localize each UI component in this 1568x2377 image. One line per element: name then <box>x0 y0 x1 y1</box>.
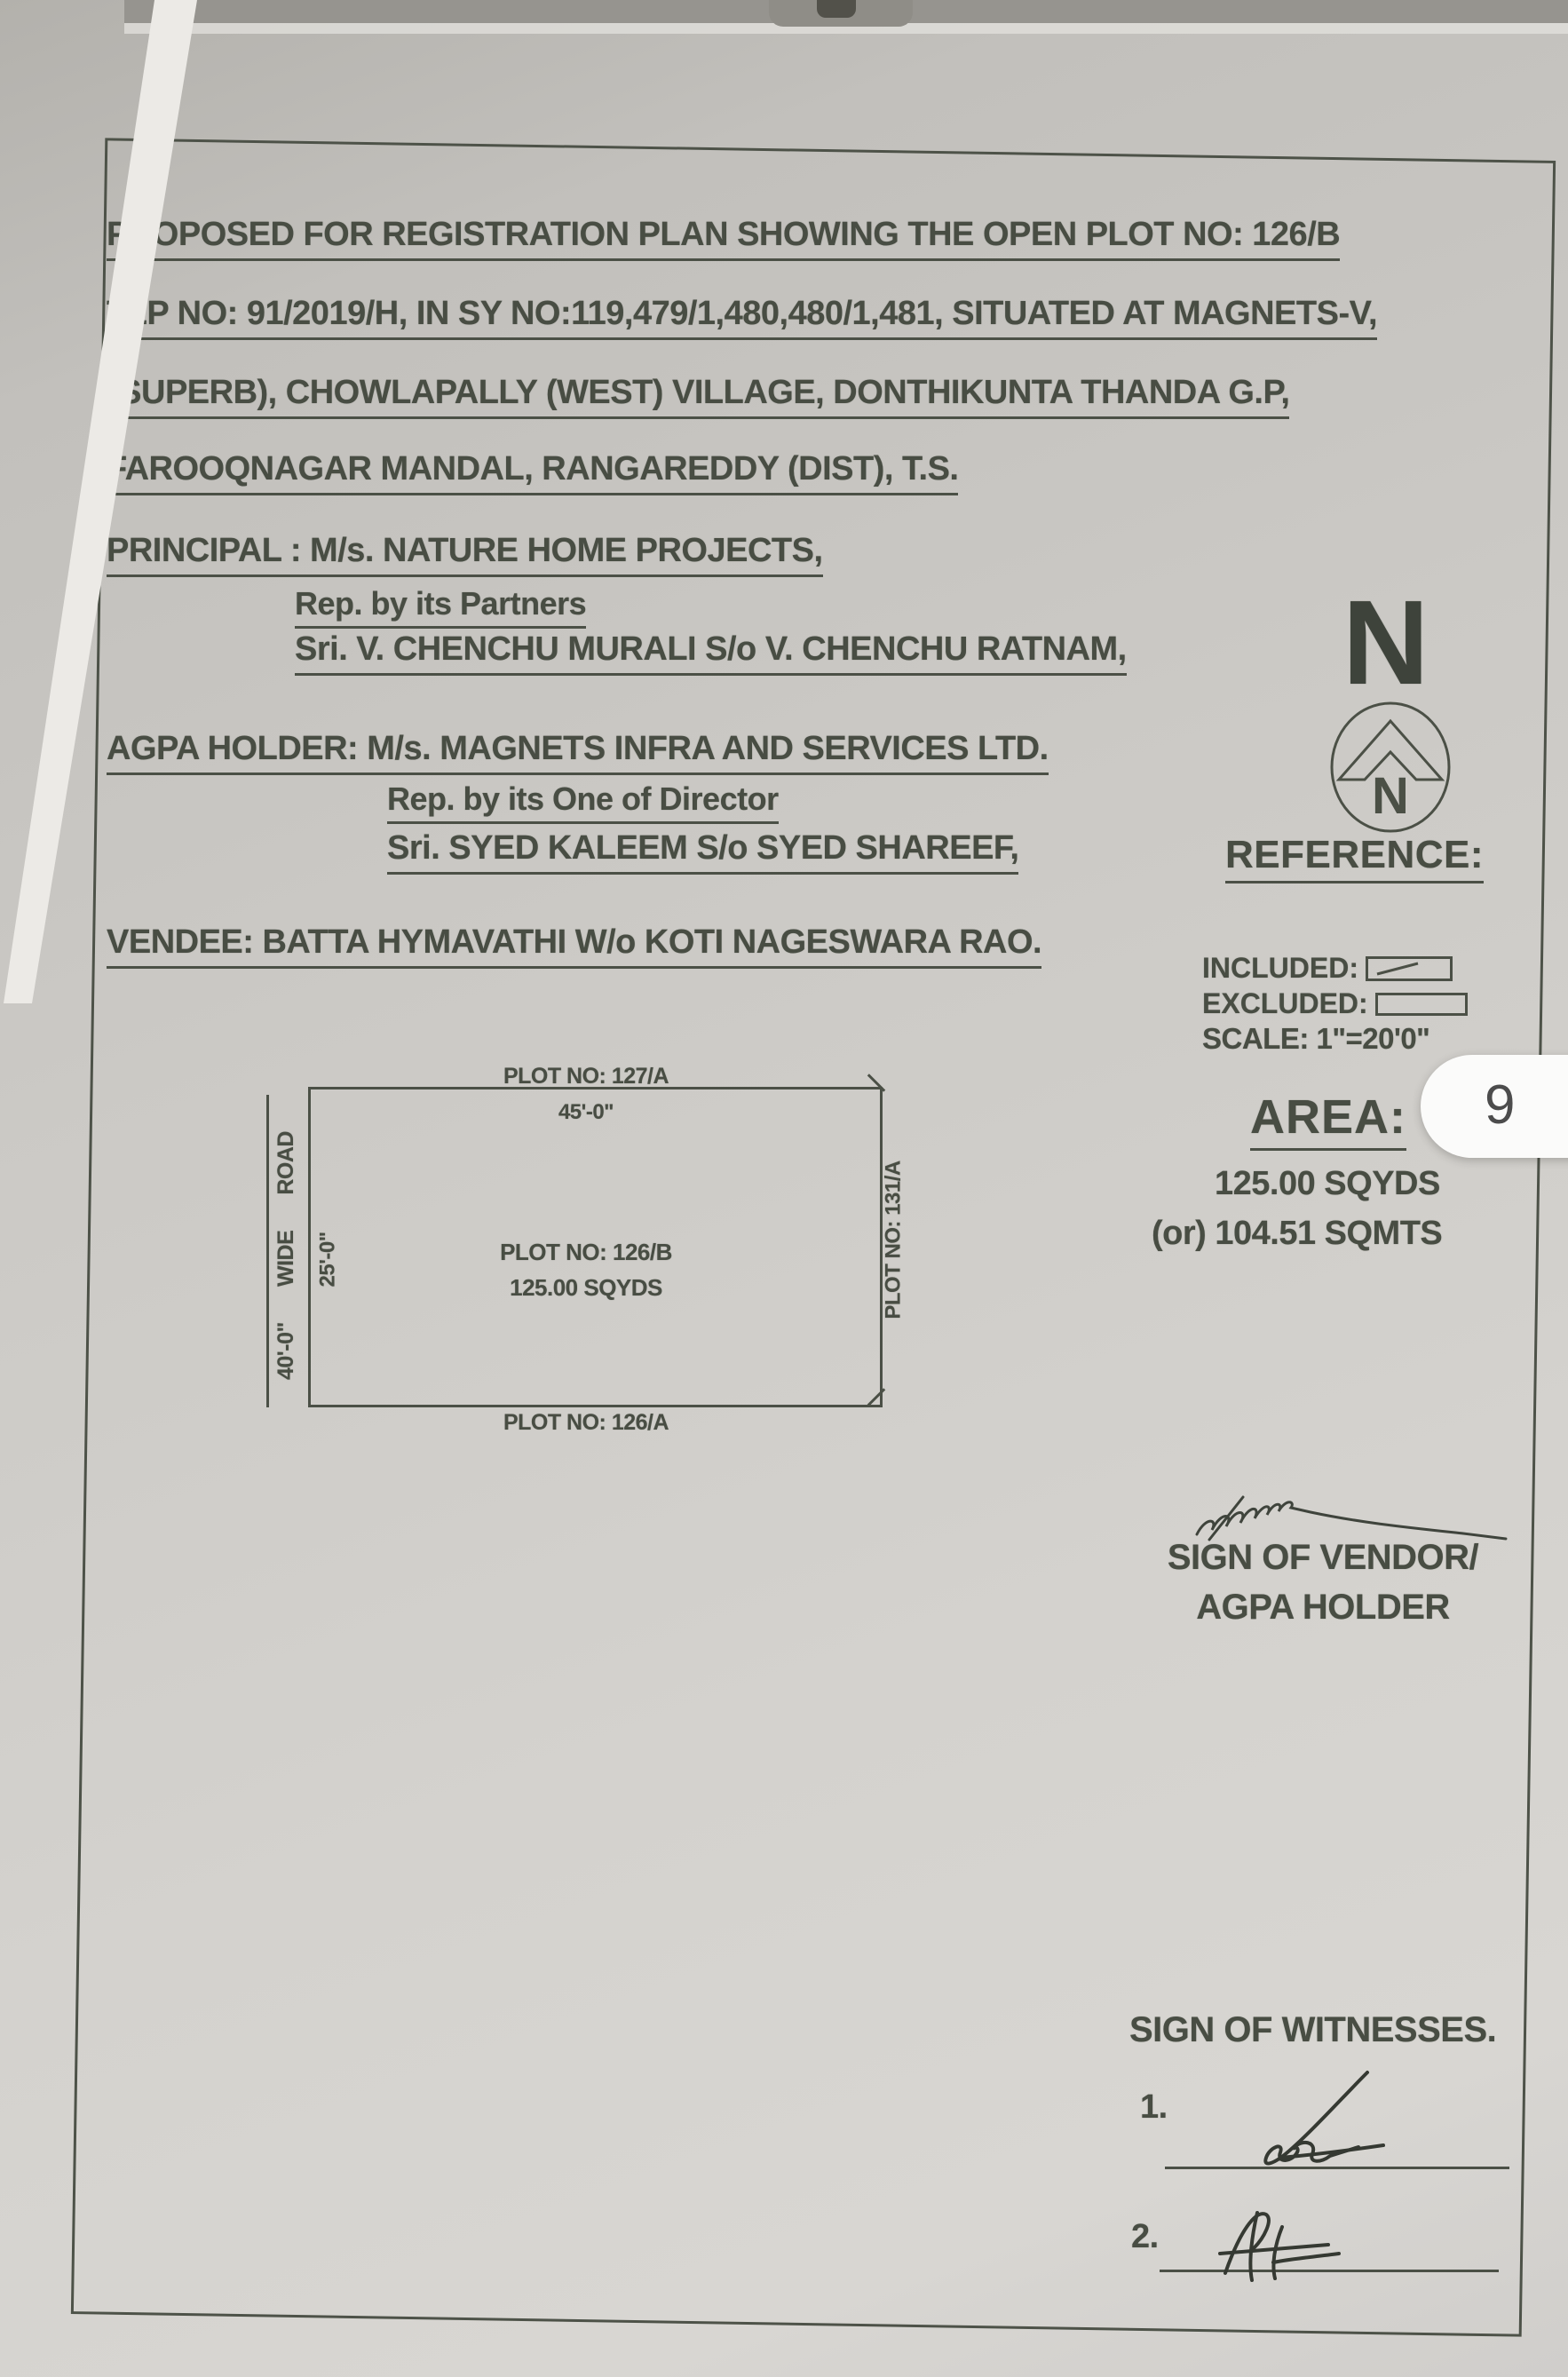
road-dimension: 40'-0" <box>273 1322 298 1380</box>
north-arrow-icon: N <box>1328 700 1453 835</box>
reference-heading: REFERENCE: <box>1225 833 1484 883</box>
north-emblem-letter: N <box>1372 767 1409 825</box>
title-line-3: (SUPERB), CHOWLAPALLY (WEST) VILLAGE, DO… <box>108 374 1289 419</box>
scale-label: SCALE: 1"=20'0" <box>1202 1023 1429 1056</box>
excluded-label: EXCLUDED: <box>1202 987 1368 1020</box>
scanned-document-photo: PROPOSED FOR REGISTRATION PLAN SHOWING T… <box>0 0 1568 2377</box>
area-heading: AREA: <box>1250 1090 1406 1151</box>
area-sqyds: 125.00 SQYDS <box>1215 1165 1440 1203</box>
plot-number-label: PLOT NO: 126/B <box>408 1240 764 1265</box>
agpa-name: Sri. SYED KALEEM S/o SYED SHAREEF, <box>387 829 1018 875</box>
sign-vendor-line-1: SIGN OF VENDOR/ <box>1145 1538 1501 1578</box>
road-label: 40'-0" WIDE ROAD <box>273 1131 298 1380</box>
principal-rep: Rep. by its Partners <box>295 586 586 629</box>
included-legend-box <box>1366 956 1453 981</box>
witness-2-number: 2. <box>1131 2218 1159 2256</box>
vendor-signature <box>1170 1483 1517 1545</box>
excluded-legend-box <box>1375 993 1468 1016</box>
page-badge-number: 9 <box>1485 1055 1515 1156</box>
title-line-4: FAROOQNAGAR MANDAL, RANGAREDDY (DIST), T… <box>107 450 958 495</box>
witness-signature-1 <box>1236 2067 1396 2174</box>
witnesses-heading: SIGN OF WITNESSES. <box>1129 2010 1496 2050</box>
north-letter: N <box>1342 575 1429 709</box>
included-label: INCLUDED: <box>1202 952 1358 985</box>
plot-area-label: 125.00 SQYDS <box>408 1275 764 1301</box>
page-badge[interactable]: 9 <box>1421 1055 1568 1158</box>
plot-west-dimension: 25'-0" <box>317 1210 341 1308</box>
title-line-1: PROPOSED FOR REGISTRATION PLAN SHOWING T… <box>107 216 1340 261</box>
plot-south-label: PLOT NO: 126/A <box>408 1410 764 1435</box>
road-word-road: ROAD <box>273 1131 298 1195</box>
principal-name: Sri. V. CHENCHU MURALI S/o V. CHENCHU RA… <box>295 630 1127 676</box>
title-line-2: TLP NO: 91/2019/H, IN SY NO:119,479/1,48… <box>107 295 1377 340</box>
vendee-line: VENDEE: BATTA HYMAVATHI W/o KOTI NAGESWA… <box>107 923 1041 969</box>
road-word-wide: WIDE <box>273 1231 298 1287</box>
plot-north-label: PLOT NO: 127/A <box>408 1064 764 1089</box>
area-sqmts: (or) 104.51 SQMTS <box>1152 1215 1442 1253</box>
witness-signature-2 <box>1200 2197 1360 2286</box>
principal-heading: PRINCIPAL : M/s. NATURE HOME PROJECTS, <box>107 532 823 577</box>
agpa-heading: AGPA HOLDER: M/s. MAGNETS INFRA AND SERV… <box>107 730 1049 775</box>
witness-1-number: 1. <box>1140 2088 1168 2127</box>
plot-north-dimension: 45'-0" <box>408 1101 764 1125</box>
sign-vendor-line-2: AGPA HOLDER <box>1145 1588 1501 1628</box>
road-edge-line <box>266 1095 269 1407</box>
plot-east-label: PLOT NO: 131/A <box>883 1133 907 1346</box>
paper-clip <box>817 0 856 18</box>
agpa-rep: Rep. by its One of Director <box>387 781 779 824</box>
